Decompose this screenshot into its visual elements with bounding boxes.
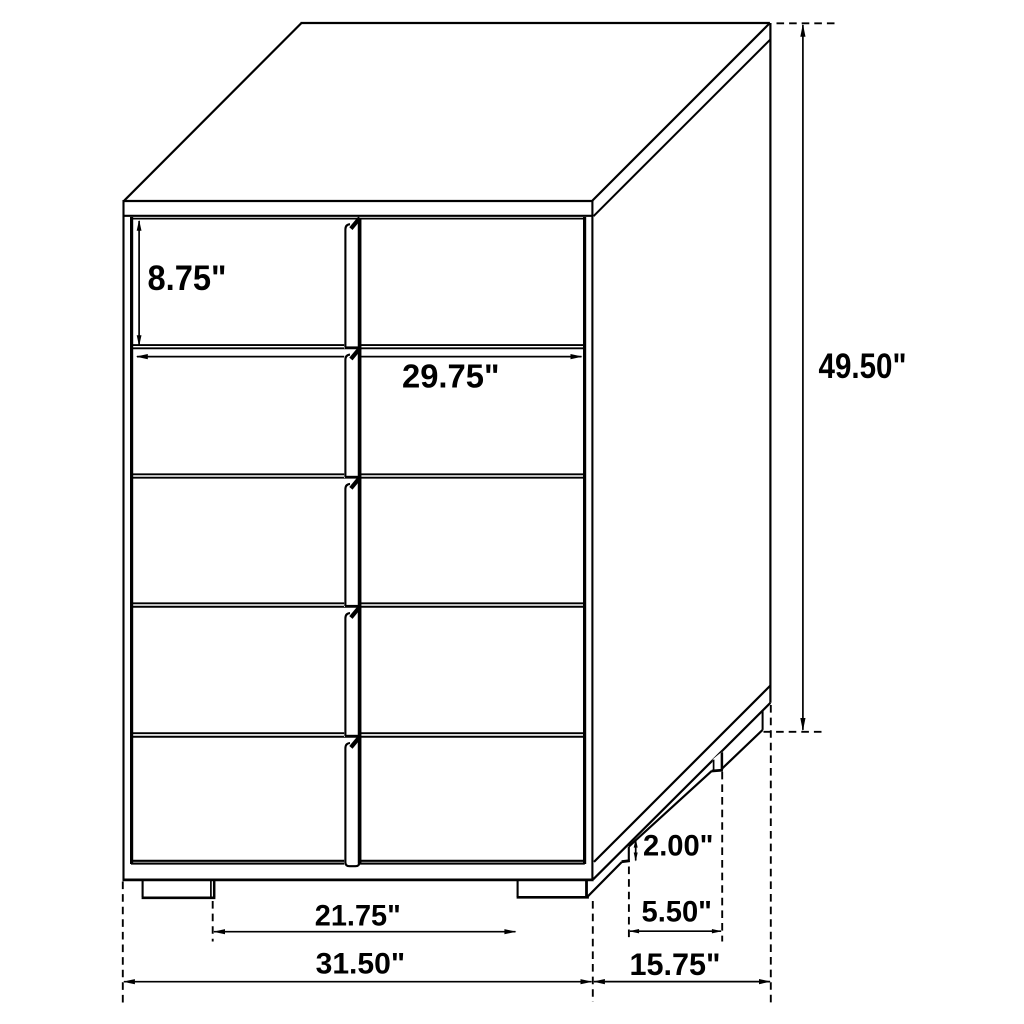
svg-text:2.00": 2.00" — [643, 829, 714, 862]
svg-text:8.75": 8.75" — [148, 259, 227, 298]
svg-text:5.50": 5.50" — [642, 896, 713, 929]
svg-text:31.50": 31.50" — [316, 948, 406, 981]
svg-text:29.75": 29.75" — [402, 357, 500, 394]
svg-text:21.75": 21.75" — [315, 900, 401, 933]
svg-text:15.75": 15.75" — [630, 946, 721, 982]
svg-text:49.50": 49.50" — [819, 347, 907, 386]
